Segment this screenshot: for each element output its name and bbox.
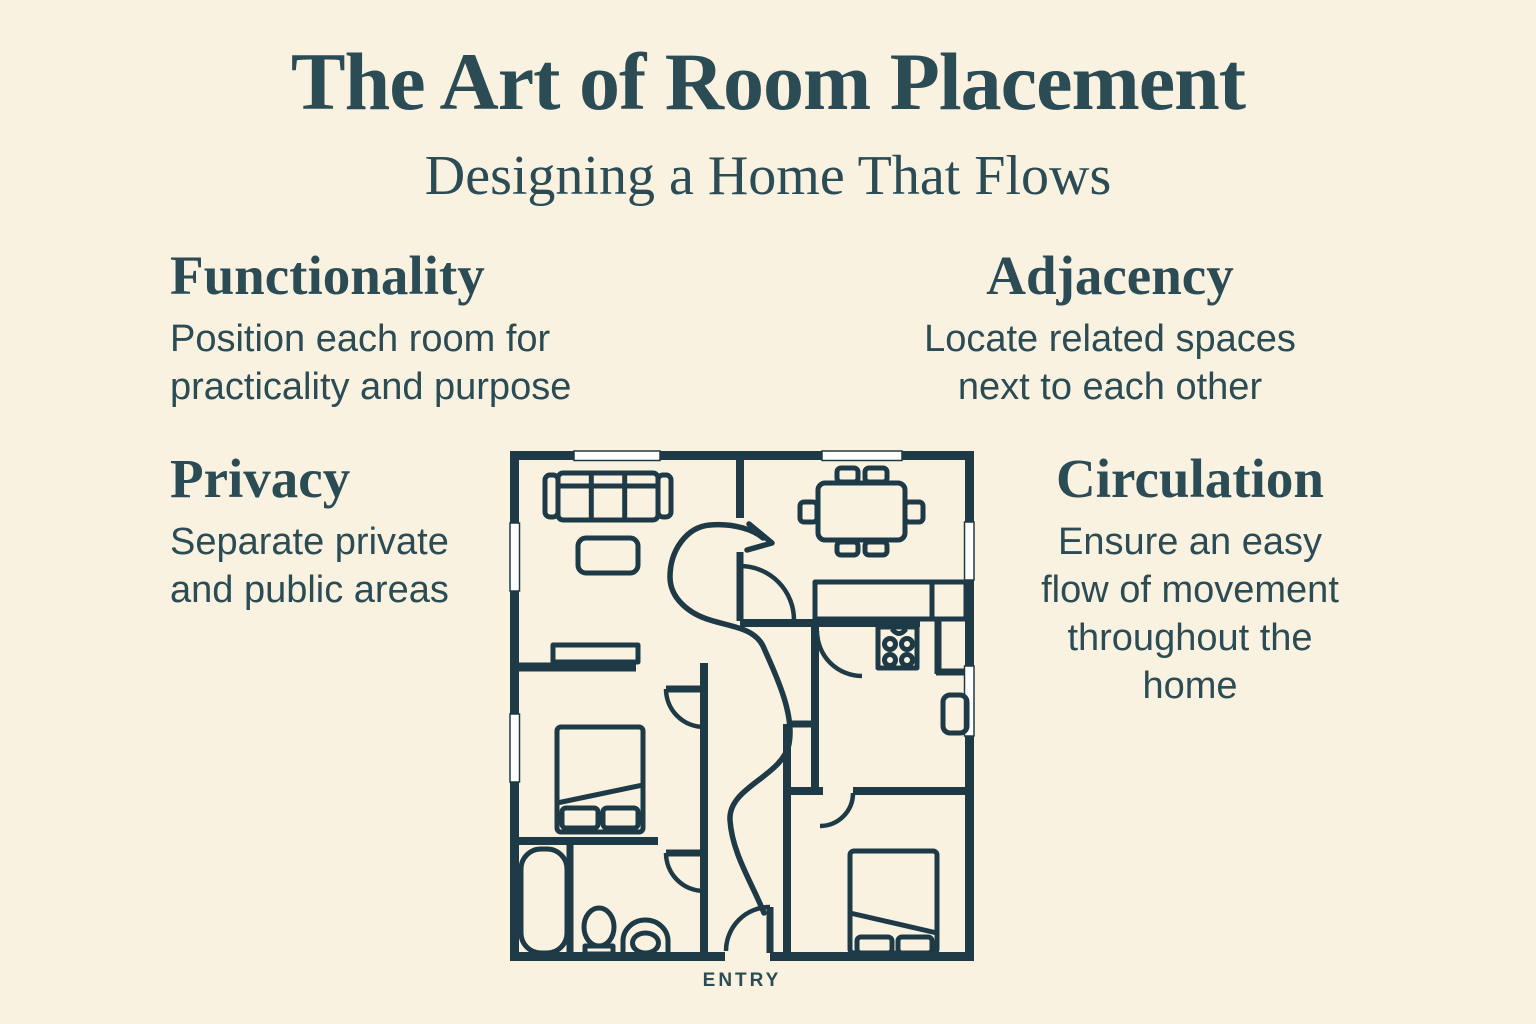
coffee-table-icon [578, 538, 638, 573]
window-icon [574, 451, 660, 461]
window-icon [965, 522, 975, 580]
section-privacy: Privacy Separate private and public area… [170, 451, 449, 614]
functionality-body: Position each room for practicality and … [170, 315, 571, 411]
bed-icon [557, 727, 643, 832]
toilet-icon [623, 920, 668, 954]
entry-opening [725, 948, 770, 962]
dining-table-icon [818, 483, 905, 540]
door-arc-icon [666, 689, 704, 727]
furniture [521, 468, 967, 954]
floor-plan-drawing [506, 447, 978, 965]
functionality-heading: Functionality [170, 248, 571, 304]
sink-icon [584, 908, 614, 954]
page-subtitle: Designing a Home That Flows [0, 146, 1536, 208]
kitchen-counter-icon [815, 582, 966, 619]
floor-plan [506, 447, 978, 965]
door-arc-icon [666, 853, 704, 891]
entry-label: ENTRY [506, 970, 978, 992]
page-title: The Art of Room Placement [0, 38, 1536, 127]
door-arc-icon [740, 566, 794, 620]
sideboard-icon [553, 645, 638, 662]
adjacency-body: Locate related spaces next to each other [900, 315, 1320, 411]
section-circulation: Circulation Ensure an easy flow of movem… [1012, 451, 1368, 710]
door-arc-icon [820, 793, 853, 826]
privacy-body: Separate private and public areas [170, 518, 449, 614]
adjacency-heading: Adjacency [900, 248, 1320, 304]
window-icon [822, 451, 902, 461]
bathtub-icon [521, 849, 567, 953]
door-arc-icon [817, 631, 862, 676]
outer-walls [515, 456, 970, 957]
window-icon [510, 523, 520, 591]
fridge-icon [943, 695, 967, 733]
privacy-heading: Privacy [170, 451, 449, 507]
sofa-icon [545, 473, 671, 520]
circulation-body: Ensure an easy flow of movement througho… [1012, 518, 1368, 710]
section-functionality: Functionality Position each room for pra… [170, 248, 571, 411]
circulation-heading: Circulation [1012, 451, 1368, 507]
window-icon [510, 714, 520, 782]
bed-icon [850, 851, 937, 953]
stove-icon [878, 627, 917, 668]
section-adjacency: Adjacency Locate related spaces next to … [900, 248, 1320, 411]
